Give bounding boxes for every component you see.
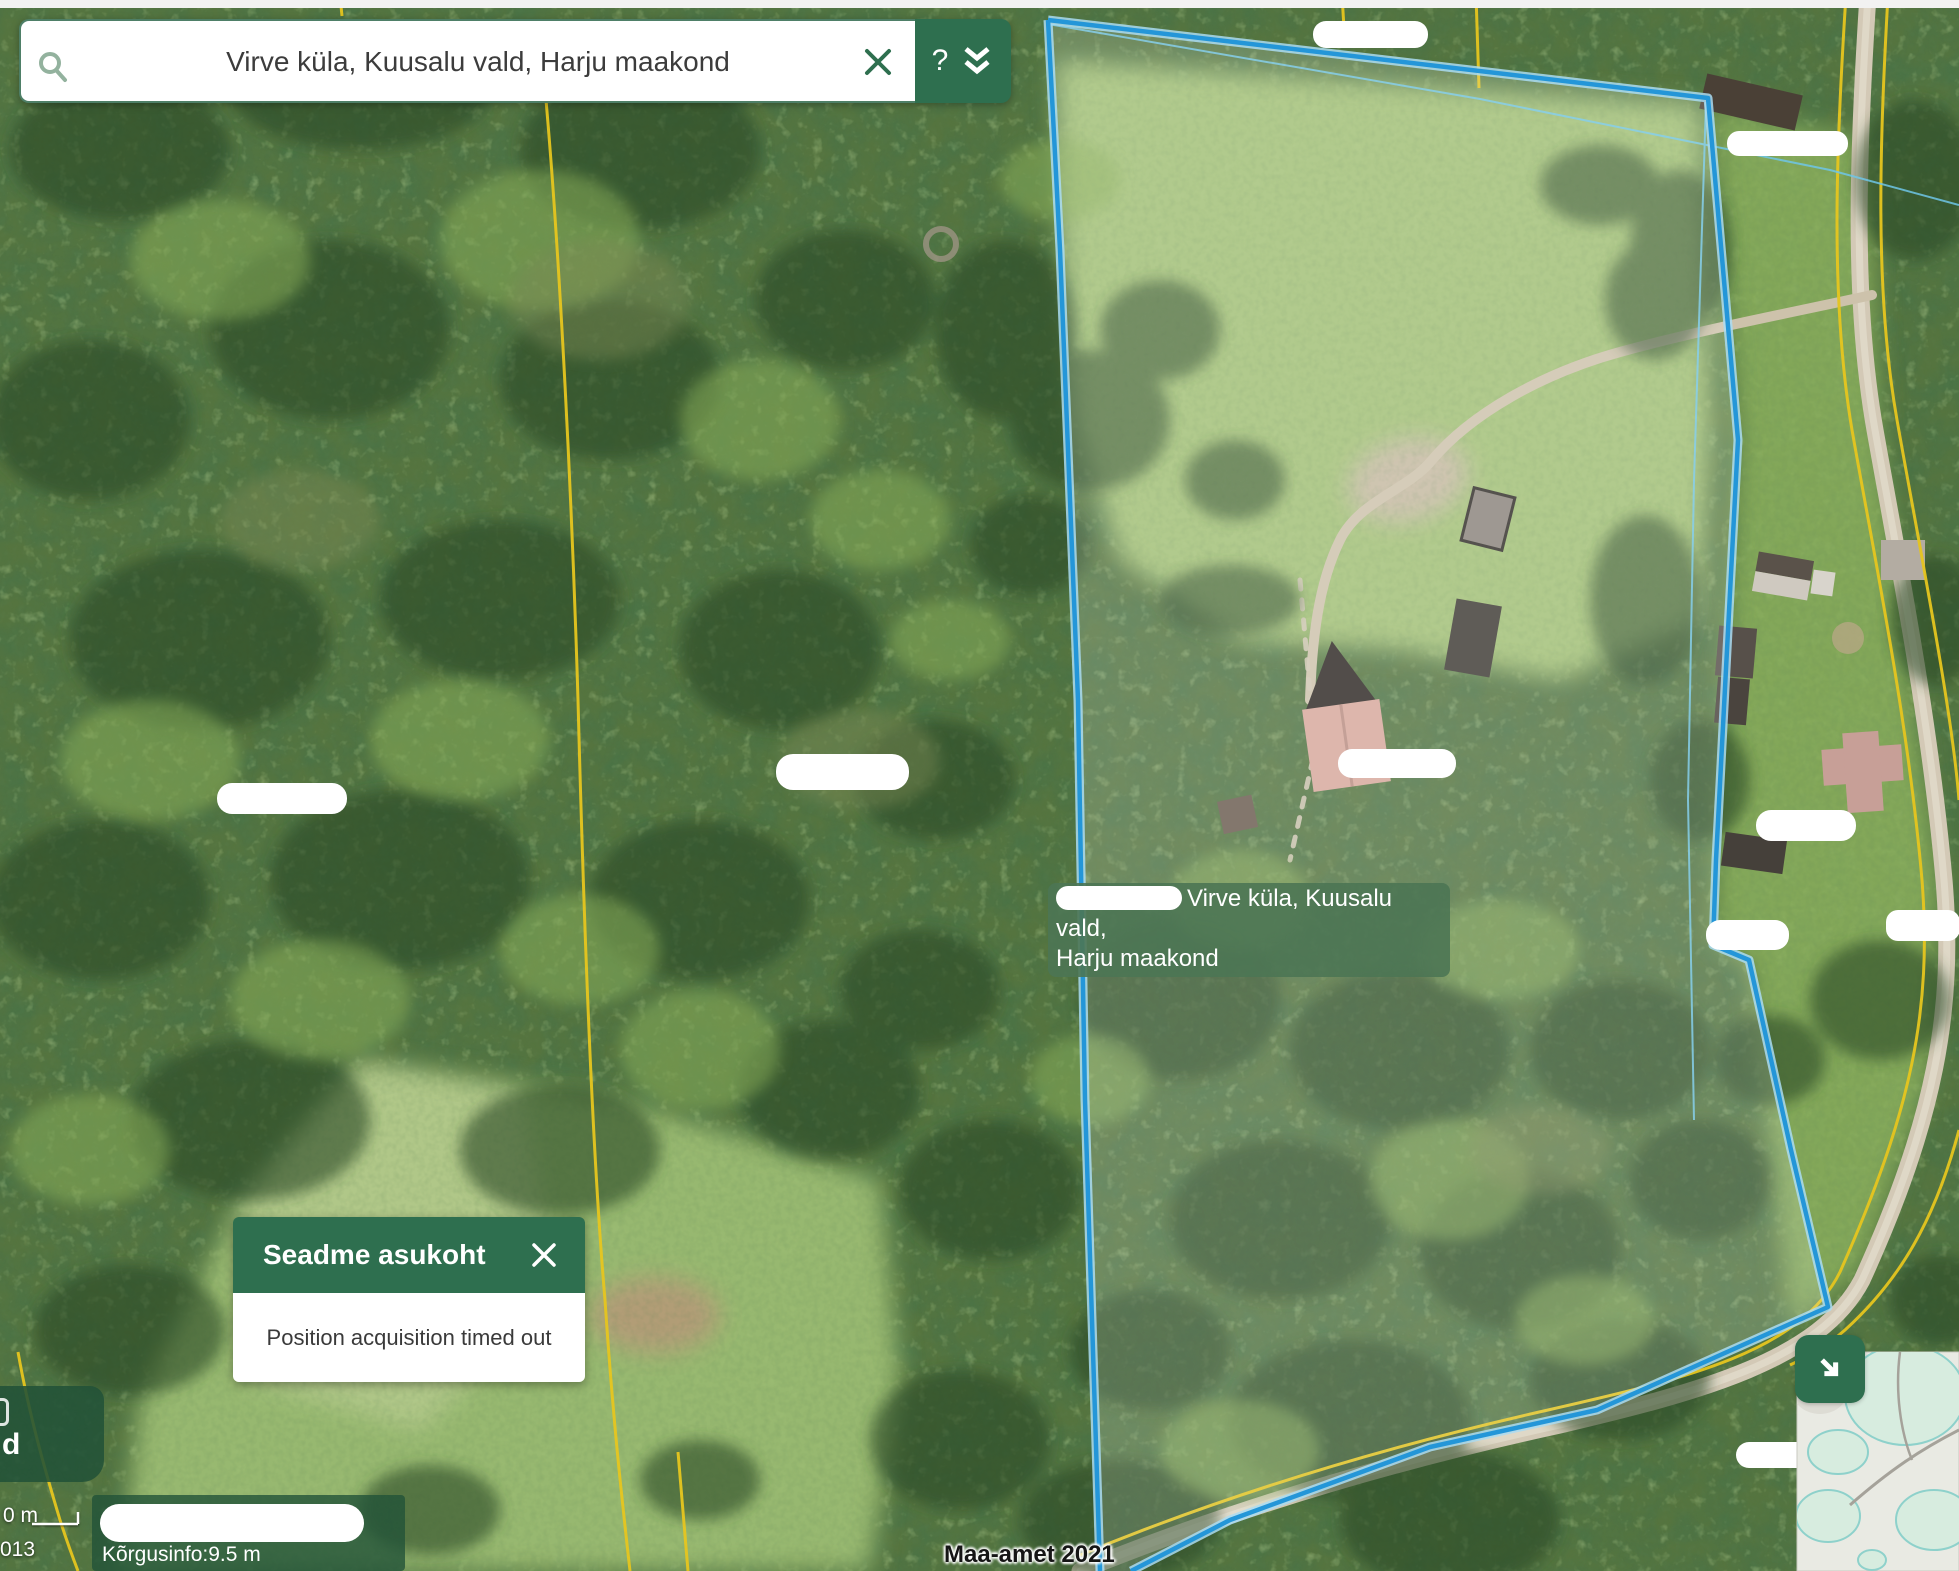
corner-label-panel: 67 d [0, 1386, 104, 1482]
double-chevron-down-icon [960, 67, 994, 82]
redaction-box [1727, 131, 1848, 156]
search-bar: ? [19, 19, 1011, 103]
page-top-strip [0, 0, 1959, 8]
dialog-body: Position acquisition timed out [233, 1293, 585, 1382]
redaction-box [1756, 810, 1856, 841]
redaction-box [1886, 910, 1959, 941]
elevation-info-text: Kõrgusinfo:9.5 m [102, 1543, 261, 1567]
status-panel: Kõrgusinfo:9.5 m [92, 1495, 405, 1571]
dialog-header: Seadme asukoht [233, 1217, 585, 1293]
parcel-address-line1: Virve küla, Kuusalu vald, [1056, 884, 1442, 944]
redaction-box [1706, 920, 1789, 950]
redaction-box [100, 1504, 364, 1542]
scale-bar [30, 1506, 86, 1530]
help-button[interactable]: ? [932, 46, 949, 76]
redaction-box [1056, 886, 1182, 910]
dialog-close-button[interactable] [529, 1240, 559, 1270]
x-icon [861, 67, 895, 82]
partial-code-text: 013 [0, 1538, 35, 1562]
arrow-down-right-icon [1812, 1350, 1848, 1389]
dialog-message: Position acquisition timed out [267, 1325, 552, 1351]
redaction-box [1338, 749, 1456, 778]
app-window: ? Virve küla, Kuusalu vald, Harju maakon… [0, 0, 1959, 1571]
dialog-title: Seadme asukoht [263, 1239, 486, 1271]
redaction-box [776, 754, 909, 790]
minimap-expand-button[interactable] [1795, 1335, 1865, 1403]
parcel-address-label: Virve küla, Kuusalu vald, Harju maakond [1048, 883, 1450, 977]
redaction-box [217, 783, 347, 814]
x-icon [529, 1258, 559, 1273]
search-box [19, 19, 915, 103]
search-input[interactable] [81, 21, 875, 103]
parcel-address-text2: Harju maakond [1056, 944, 1442, 974]
road-number-badge: 67 [0, 1398, 9, 1426]
search-icon [35, 49, 71, 90]
parcel-boundary [1048, 20, 1828, 1571]
device-location-dialog: Seadme asukoht Position acquisition time… [233, 1217, 585, 1382]
redaction-box [1313, 21, 1428, 48]
corner-partial-text: d [2, 1428, 20, 1462]
clear-search-button[interactable] [861, 45, 895, 79]
search-actions: ? [915, 19, 1011, 103]
expand-search-button[interactable] [960, 43, 994, 79]
map-attribution: Maa-amet 2021 [944, 1541, 1115, 1569]
